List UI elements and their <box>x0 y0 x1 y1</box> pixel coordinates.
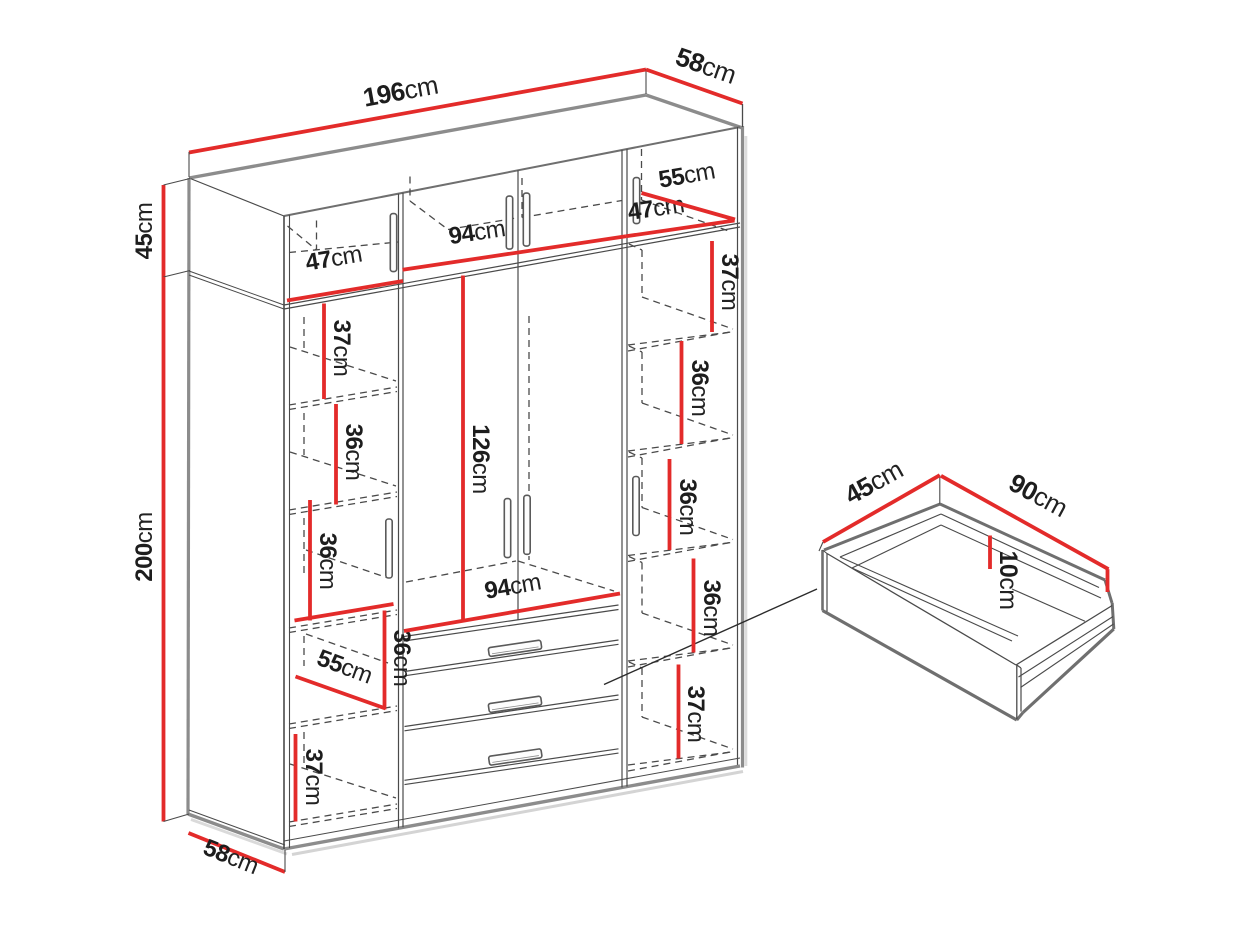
svg-text:36cm: 36cm <box>314 533 341 590</box>
svg-text:36cm: 36cm <box>686 360 713 417</box>
svg-text:126cm: 126cm <box>467 424 494 494</box>
svg-text:45cm: 45cm <box>131 203 158 260</box>
svg-text:37cm: 37cm <box>300 749 327 806</box>
svg-text:36cm: 36cm <box>674 479 701 536</box>
svg-text:36cm: 36cm <box>388 630 415 687</box>
svg-text:36cm: 36cm <box>340 424 367 481</box>
svg-text:37cm: 37cm <box>716 254 743 311</box>
svg-text:200cm: 200cm <box>131 512 158 582</box>
svg-text:37cm: 37cm <box>682 686 709 743</box>
svg-text:10cm: 10cm <box>994 550 1022 609</box>
svg-text:36cm: 36cm <box>698 580 725 637</box>
svg-text:37cm: 37cm <box>328 320 355 377</box>
